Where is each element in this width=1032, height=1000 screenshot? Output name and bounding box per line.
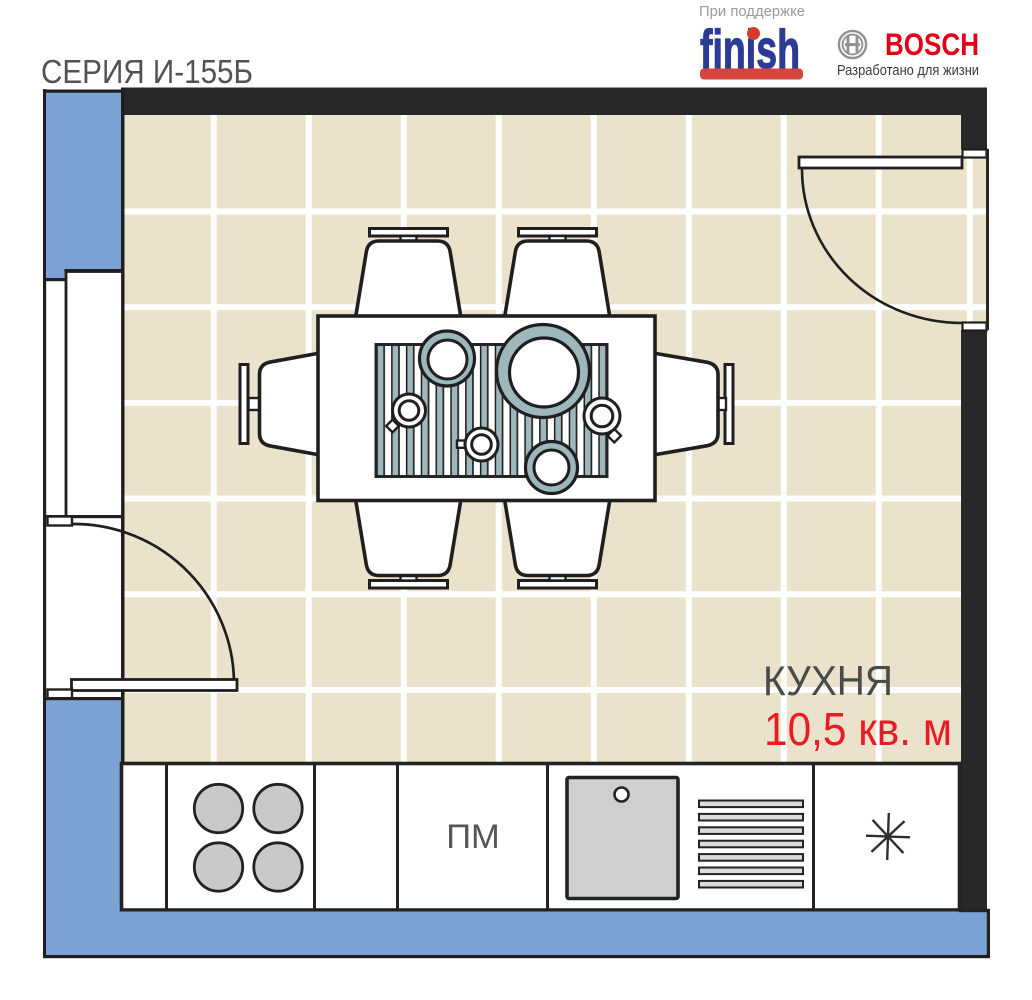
svg-text:Разработано для жизни: Разработано для жизни	[837, 63, 979, 79]
svg-text:ПМ: ПМ	[446, 818, 500, 856]
svg-text:КУХНЯ: КУХНЯ	[763, 657, 893, 704]
svg-text:10,5 кв. м: 10,5 кв. м	[764, 703, 952, 755]
svg-text:BOSCH: BOSCH	[885, 26, 979, 62]
svg-text:СЕРИЯ И-155Б: СЕРИЯ И-155Б	[41, 53, 253, 90]
